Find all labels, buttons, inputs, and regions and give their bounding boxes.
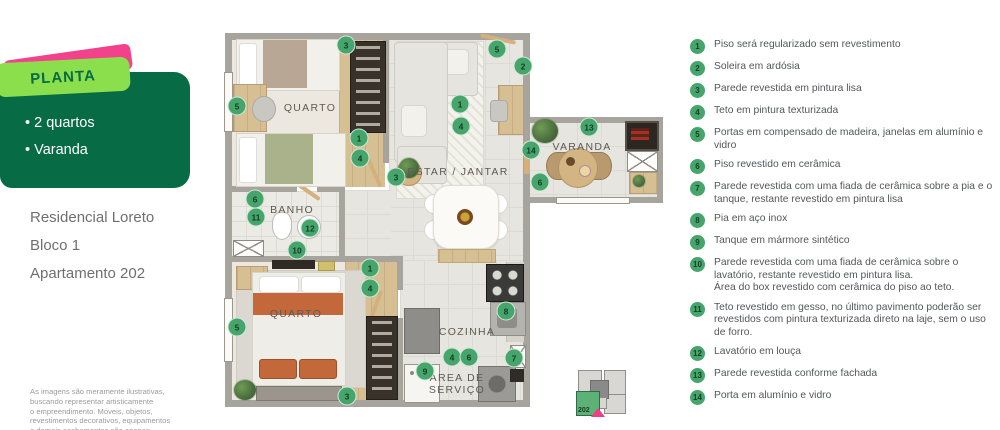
bedroom1-chair — [252, 96, 276, 122]
legend-item-text: Porta em alumínio e vidro — [714, 390, 831, 403]
foot-cushion — [299, 359, 337, 379]
planta-badge: PLANTA — [0, 57, 131, 98]
room-label: COZINHA — [439, 326, 495, 338]
plan-marker: 4 — [452, 117, 471, 136]
plan-marker: 6 — [531, 173, 550, 192]
legend-item-text: Tanque em mármore sintético — [714, 235, 850, 248]
legend-item-number: 3 — [690, 83, 705, 98]
legend-item-number: 11 — [690, 302, 705, 317]
legend-item-number: 14 — [690, 390, 705, 405]
legend-item: 3 Parede revestida em pintura lisa — [690, 83, 998, 98]
legend-item-number: 10 — [690, 257, 705, 272]
plan-marker: 3 — [338, 387, 357, 406]
bedroom1-bed-single-2 — [236, 133, 346, 187]
grill-coals — [631, 128, 649, 140]
legend-item: 11 Teto revestido em gesso, no último pa… — [690, 302, 998, 340]
legend-item-number: 6 — [690, 159, 705, 174]
plan-marker: 1 — [350, 129, 369, 148]
bed-bench — [256, 386, 342, 401]
feature-item: Varanda — [25, 137, 95, 164]
wall-bedroom2-right-upper — [397, 256, 403, 290]
sofa-cushion — [401, 105, 427, 137]
legend-item: 12 Lavatório em louça — [690, 346, 998, 361]
feature-item: 2 quartos — [25, 110, 95, 137]
plan-marker: 5 — [228, 97, 247, 116]
legend-item-text: Parede revestida com uma fiada de cerâmi… — [714, 181, 998, 206]
faucet-dot — [410, 371, 414, 375]
plan-marker: 8 — [497, 302, 516, 321]
legend-item: 4 Teto em pintura texturizada — [690, 105, 998, 120]
plan-marker: 14 — [522, 141, 541, 160]
legend-item: 2 Soleira em ardósia — [690, 61, 998, 76]
service-dark-cabinet — [510, 369, 524, 382]
plate — [579, 165, 591, 177]
legend-item-text: Piso será regularizado sem revestimento — [714, 39, 901, 52]
plan-marker: 7 — [505, 349, 524, 368]
plan-marker: 6 — [460, 348, 479, 367]
legend-item-number: 5 — [690, 127, 705, 142]
bedroom2-bed-double — [252, 272, 346, 386]
plan-marker: 10 — [288, 241, 307, 260]
plan-marker: 1 — [361, 259, 380, 278]
pillow — [239, 43, 257, 87]
legend: 1 Piso será regularizado sem revestiment… — [690, 39, 998, 405]
legend-item-number: 1 — [690, 39, 705, 54]
legend-item-number: 4 — [690, 105, 705, 120]
room-label: VARANDA — [552, 141, 611, 153]
bedroom2-plant — [234, 380, 256, 400]
room-label: QUARTO — [270, 308, 322, 320]
legend-item-text: Portas em compensado de madeira, janelas… — [714, 127, 998, 152]
balcony-plant — [532, 119, 558, 143]
sofa-side — [394, 42, 448, 162]
floorplan-page: PLANTA 2 quartosVaranda Residencial Lore… — [0, 0, 1000, 430]
plan-marker: 5 — [488, 40, 507, 59]
legend-item-number: 13 — [690, 368, 705, 383]
room-label: QUARTO — [284, 102, 336, 114]
legend-item-number: 8 — [690, 213, 705, 228]
legend-item-text: Pia em aço inox — [714, 213, 787, 226]
grill — [625, 121, 659, 151]
planta-badge-label: PLANTA — [30, 67, 97, 87]
shower-box — [233, 240, 264, 257]
plan-marker: 12 — [301, 219, 320, 238]
balcony-table — [558, 148, 598, 188]
pillow — [259, 276, 299, 293]
plan-marker: 1 — [451, 95, 470, 114]
foot-cushion — [259, 359, 297, 379]
plan-marker: 2 — [514, 57, 533, 76]
plan-marker: 4 — [361, 279, 380, 298]
legend-item-number: 9 — [690, 235, 705, 250]
feature-list: 2 quartosVaranda — [25, 110, 95, 164]
plan-marker: 13 — [580, 118, 599, 137]
legend-item: 8 Pia em aço inox — [690, 213, 998, 228]
room-label: ÁREA DE SERVIÇO — [429, 372, 485, 396]
bedroom1-wardrobe — [350, 41, 386, 133]
plate — [566, 157, 575, 166]
legend-item-text: Lavatório em louça — [714, 346, 801, 359]
legend-item: 7 Parede revestida com uma fiada de cerâ… — [690, 181, 998, 206]
wall-bathroom-right — [339, 186, 345, 262]
keyplan-pointer-triangle — [591, 408, 605, 417]
balcony-shelf-plant — [633, 175, 645, 187]
legend-item-number: 12 — [690, 346, 705, 361]
pillow — [239, 137, 257, 183]
legend-item: 6 Piso revestido em cerâmica — [690, 159, 998, 174]
room-label: ESTAR / JANTAR — [407, 166, 508, 178]
legend-item: 1 Piso será regularizado sem revestiment… — [690, 39, 998, 54]
legend-item-text: Parede revestida em pintura lisa — [714, 83, 862, 96]
toilet — [272, 212, 292, 240]
dresser-item — [318, 261, 335, 271]
plan-marker: 5 — [228, 318, 247, 337]
plan-marker: 6 — [246, 190, 265, 209]
blanket — [263, 40, 307, 88]
dining-dish — [457, 209, 473, 225]
hall-floor — [343, 190, 391, 258]
fridge — [404, 308, 440, 354]
legend-item-text: Teto em pintura texturizada — [714, 105, 838, 118]
legend-item: 9 Tanque em mármore sintético — [690, 235, 998, 250]
keyplan-unit-label: 202 — [578, 407, 590, 414]
legend-item-text: Piso revestido em cerâmica — [714, 159, 840, 172]
dining-bench — [438, 249, 496, 263]
room-label: BANHO — [270, 204, 314, 216]
ac-unit-box — [627, 151, 658, 172]
legend-item-text: Parede revestida com uma fiada de cerâmi… — [714, 257, 998, 295]
legend-item: 10 Parede revestida com uma fiada de cer… — [690, 257, 998, 295]
keyplan: 202 — [570, 362, 650, 422]
plan-marker: 3 — [337, 36, 356, 55]
legend-item-text: Teto revestido em gesso, no último pavim… — [714, 302, 998, 340]
stove — [486, 264, 524, 302]
plan-marker: 3 — [387, 168, 406, 187]
bedroom2-wardrobe — [366, 316, 398, 400]
legend-item: 5 Portas em compensado de madeira, janel… — [690, 127, 998, 152]
plan-marker: 4 — [351, 149, 370, 168]
plan-marker: 11 — [247, 208, 266, 227]
legend-item-text: Parede revestida conforme fachada — [714, 368, 877, 381]
living-desk-chair — [490, 100, 508, 122]
balcony-window — [556, 197, 630, 204]
legend-item-number: 2 — [690, 61, 705, 76]
legend-item: 14 Porta em alumínio e vidro — [690, 390, 998, 405]
pillow — [301, 276, 341, 293]
blanket — [265, 134, 313, 184]
legend-item-number: 7 — [690, 181, 705, 196]
plan-marker: 9 — [416, 362, 435, 381]
legend-item-text: Soleira em ardósia — [714, 61, 800, 74]
legend-item: 13 Parede revestida conforme fachada — [690, 368, 998, 383]
bedroom2-dresser — [272, 260, 315, 269]
